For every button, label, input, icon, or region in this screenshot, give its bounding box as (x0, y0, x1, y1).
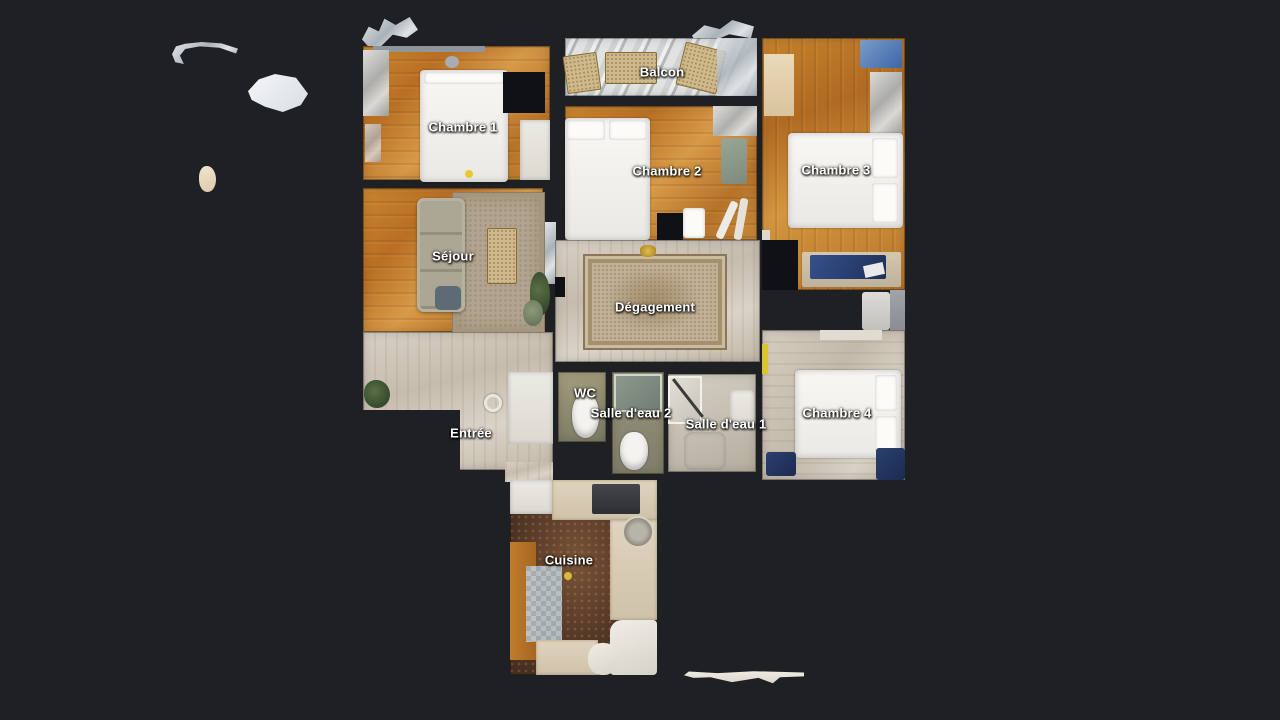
pillow (683, 208, 705, 238)
washing-machine (610, 620, 657, 675)
pillow (609, 120, 647, 140)
room-cuisine[interactable] (510, 480, 657, 675)
floorplan-canvas[interactable]: Balcon Chambre 1 Chambre 2 Chambre 3 Séj… (0, 0, 1280, 720)
scan-hole (555, 277, 565, 297)
shower-glass (672, 378, 704, 418)
kitchen-doorway-floor[interactable] (505, 462, 553, 482)
room-label-degagement: Dégagement (615, 300, 695, 315)
wardrobe (713, 106, 757, 136)
pillow (567, 120, 605, 140)
room-label-chambre-1: Chambre 1 (429, 120, 498, 135)
coffee-table (487, 228, 517, 284)
tape-marker (762, 344, 768, 374)
rattan-chair (563, 52, 602, 94)
kitchen-sink (622, 516, 654, 548)
scan-artifact (362, 17, 418, 49)
bed (788, 133, 903, 228)
throw-pillow (435, 286, 461, 310)
room-label-chambre-4: Chambre 4 (803, 406, 872, 421)
pillow (875, 375, 897, 411)
scan-artifact (248, 74, 308, 112)
fridge (510, 480, 552, 514)
ceiling-lamp (445, 56, 459, 68)
room-entree[interactable] (363, 332, 553, 470)
bathtub (684, 432, 726, 470)
brass-object (640, 245, 656, 257)
desk (802, 252, 901, 287)
floor-socket (484, 394, 502, 412)
pillow (872, 138, 898, 178)
room-salle-deau-2[interactable] (612, 372, 664, 474)
wall-edge (373, 46, 485, 52)
scan-artifact (862, 292, 890, 330)
pillow (424, 72, 504, 84)
door-marker (564, 572, 572, 580)
scan-artifact (172, 42, 238, 64)
pillow (875, 416, 897, 452)
room-label-salle-deau-2: Salle d'eau 2 (591, 406, 672, 421)
plant-pot (523, 300, 543, 326)
window-reflection (365, 124, 381, 162)
bed (565, 118, 650, 240)
stool (588, 643, 618, 675)
room-label-cuisine: Cuisine (545, 553, 593, 568)
scan-debris (717, 38, 757, 96)
room-label-entree: Entrée (450, 426, 492, 441)
floor-mat (526, 566, 562, 642)
radiator (363, 50, 389, 116)
closet (764, 54, 794, 116)
scan-artifact (199, 166, 216, 192)
scan-artifact (684, 668, 804, 684)
cabinet (508, 372, 553, 444)
room-chambre-1[interactable] (363, 46, 550, 180)
bag (876, 448, 905, 480)
toilet (620, 432, 648, 470)
scan-hole (762, 240, 798, 290)
wardrobe (520, 120, 550, 180)
blue-storage (860, 40, 902, 68)
plant (364, 380, 390, 408)
cooktop (592, 484, 640, 514)
room-label-salle-deau-1: Salle d'eau 1 (686, 417, 767, 432)
pillow (872, 183, 898, 223)
room-label-chambre-3: Chambre 3 (802, 163, 871, 178)
scan-hole (657, 213, 683, 240)
bag (766, 452, 796, 476)
drying-rack (870, 72, 902, 134)
room-label-balcon: Balcon (640, 65, 685, 80)
shelf (820, 330, 882, 340)
scan-hole (503, 72, 545, 113)
chair (721, 138, 747, 184)
room-label-wc: WC (574, 386, 596, 401)
room-label-sejour: Séjour (432, 249, 474, 264)
room-label-chambre-2: Chambre 2 (633, 164, 702, 179)
door-marker (465, 170, 473, 178)
